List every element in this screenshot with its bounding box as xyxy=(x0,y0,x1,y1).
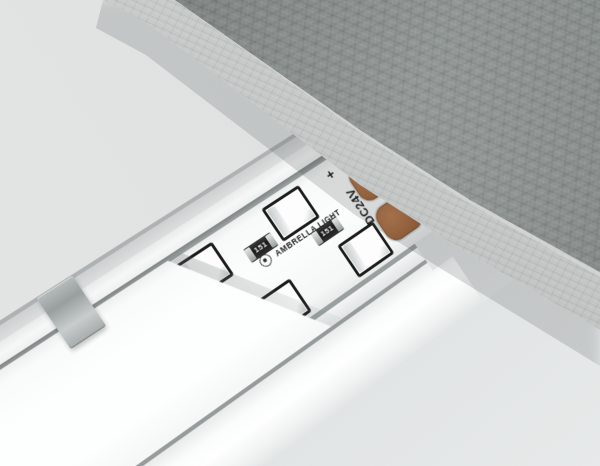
scene: 151 151 AMBRELLA LIGHT DC24V + ✂ xyxy=(0,0,600,466)
resistor-value: 151 xyxy=(253,240,269,254)
